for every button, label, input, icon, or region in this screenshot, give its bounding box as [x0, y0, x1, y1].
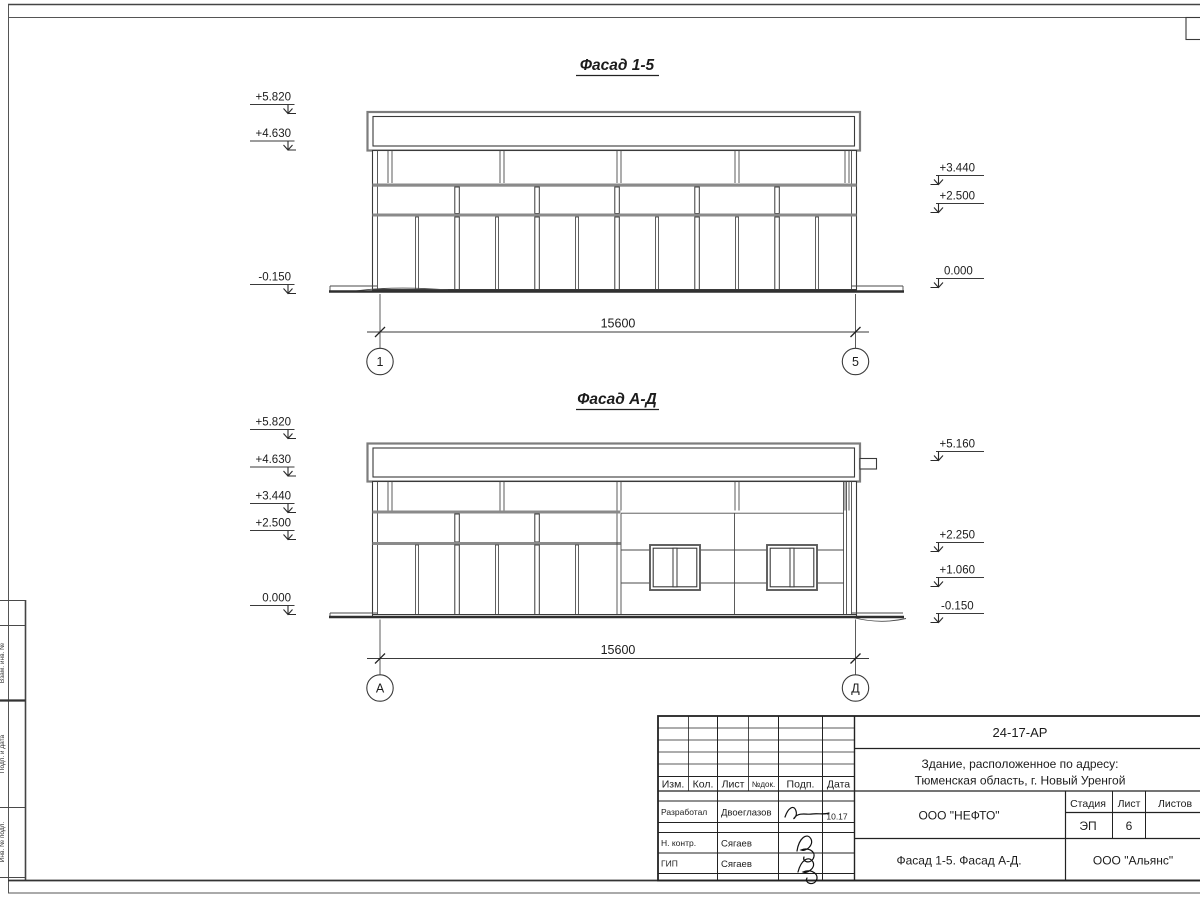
elevation-mark-value: +5.160 — [940, 439, 976, 451]
dimension-value: 15600 — [601, 643, 636, 657]
drawing-sheet: Взам. инв. № Подп. и дата Инв. № подл. Ф… — [0, 0, 1200, 900]
project-line2: Тюменская область, г. Новый Уренгой — [915, 774, 1126, 788]
row-role: ГИП — [661, 859, 678, 869]
rev-header-ndok: №док. — [752, 780, 775, 789]
elevation-mark: +4.630 — [250, 128, 296, 150]
row-name: Сягаев — [721, 839, 752, 850]
elevation-mark-value: +4.630 — [256, 128, 292, 140]
elevation-mark: 0.000 — [250, 593, 296, 615]
facade-1-5-title: Фасад 1-5 — [580, 57, 655, 74]
frame-label-vzam-inv: Взам. инв. № — [0, 643, 6, 683]
elevation-mark: 0.000 — [931, 266, 985, 288]
elevation-mark-value: +5.820 — [256, 92, 292, 104]
axis-bubble-a: А — [367, 675, 393, 701]
elevation-mark-value: +1.060 — [940, 565, 976, 577]
axis-label: А — [376, 682, 385, 696]
elevation-mark-value: 0.000 — [944, 266, 973, 278]
dimension-line: 15600 — [367, 620, 869, 675]
signature — [797, 836, 814, 862]
elevation-mark-value: +3.440 — [256, 491, 292, 503]
rev-header-podp: Подп. — [787, 779, 815, 791]
org2: ООО "Альянс" — [1093, 854, 1173, 868]
elevation-mark: -0.150 — [931, 601, 985, 623]
sign-bracket — [860, 459, 877, 470]
elevation-mark-value: +4.630 — [256, 454, 292, 466]
sheet-label: Лист — [1118, 798, 1141, 810]
elevation-mark: -0.150 — [250, 272, 296, 294]
facade-1-5-building — [329, 112, 904, 292]
rev-header-kol: Кол. — [693, 779, 714, 791]
axis-bubble-d: Д — [842, 675, 868, 701]
rev-header-izm: Изм. — [662, 779, 685, 791]
project-line1: Здание, расположенное по адресу: — [921, 757, 1118, 771]
axis-label: 5 — [852, 355, 859, 369]
row-name: Двоеглазов — [721, 808, 772, 819]
rev-header-data: Дата — [827, 779, 850, 791]
elevation-mark: +5.820 — [250, 417, 296, 439]
dimension-value: 15600 — [601, 317, 636, 331]
elevation-mark-value: 0.000 — [262, 593, 291, 605]
axis-bubble-1: 1 — [367, 348, 393, 374]
elevation-mark-value: +2.500 — [256, 518, 292, 530]
axis-label: 1 — [377, 355, 384, 369]
elevation-mark-value: +2.250 — [940, 530, 976, 542]
row-name: Сягаев — [721, 859, 752, 870]
elevation-mark: +5.820 — [250, 92, 296, 114]
window — [767, 545, 817, 590]
frame-label-podp-data: Подп. и дата — [0, 734, 6, 773]
rev-header-list: Лист — [722, 779, 745, 791]
axis-bubble-5: 5 — [842, 348, 868, 374]
sheets-label: Листов — [1158, 798, 1193, 810]
elevation-mark: +4.630 — [250, 454, 296, 476]
stage-value: ЭП — [1079, 819, 1096, 833]
title-block: Изм. Кол. Лист №док. Подп. Дата Разработ… — [658, 716, 1200, 884]
stage-label: Стадия — [1070, 798, 1106, 810]
facade-a-d-building — [329, 444, 906, 622]
doc-number: 24-17-АР — [993, 725, 1048, 740]
elevation-mark: +5.160 — [931, 439, 985, 461]
elevation-mark: +1.060 — [931, 565, 985, 587]
elevation-mark-value: -0.150 — [258, 272, 291, 284]
elevation-mark: +2.250 — [931, 530, 985, 552]
facade-1-5-view: Фасад 1-5 — [250, 57, 984, 375]
corner-stamp-box — [1186, 18, 1200, 40]
elevation-mark: +3.440 — [250, 491, 296, 513]
sheet-number: 6 — [1126, 819, 1133, 833]
window — [650, 545, 700, 590]
drawing-title: Фасад 1-5. Фасад А-Д. — [896, 854, 1021, 868]
drawing-canvas: Взам. инв. № Подп. и дата Инв. № подл. Ф… — [0, 0, 1200, 900]
facade-a-d-view: Фасад А-Д — [250, 391, 984, 701]
elevation-mark: +2.500 — [250, 518, 296, 540]
elevation-mark-value: +5.820 — [256, 417, 292, 429]
org1: ООО "НЕФТО" — [918, 809, 999, 823]
row-role: Н. контр. — [661, 838, 696, 848]
dimension-line: 15600 — [367, 294, 869, 348]
elevation-mark-value: -0.150 — [941, 601, 974, 613]
elevation-mark: +2.500 — [931, 191, 985, 213]
elevation-mark-value: +3.440 — [940, 163, 976, 175]
facade-a-d-title: Фасад А-Д — [577, 391, 656, 408]
frame-label-inv-podl: Инв. № подл. — [0, 822, 6, 863]
axis-label: Д — [851, 682, 860, 696]
elevation-mark: +3.440 — [931, 163, 985, 185]
elevation-mark-value: +2.500 — [940, 191, 976, 203]
row-role: Разработал — [661, 807, 707, 817]
